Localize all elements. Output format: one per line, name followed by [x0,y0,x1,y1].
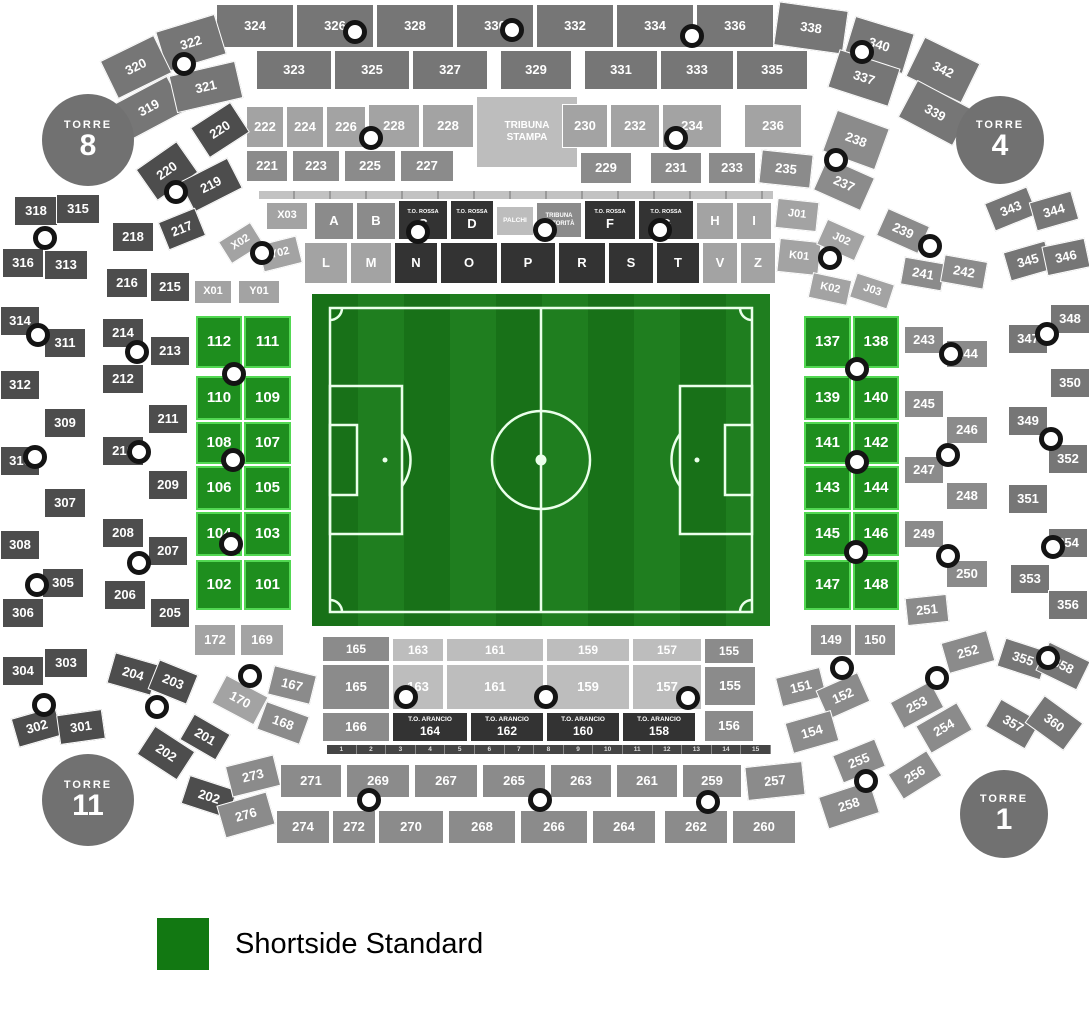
section-336: 336 [696,4,774,48]
section-262: 262 [664,810,728,844]
section-label: 217 [169,219,194,240]
gate-marker [221,448,245,472]
gate-marker [850,40,874,64]
section-249: 249 [904,520,944,548]
section-sub-label: T.O. ARANCIO [408,717,452,724]
section-325: 325 [334,50,410,90]
section-label: 110 [207,390,231,406]
section-label: 346 [1054,248,1078,266]
section-label: T [674,256,682,270]
section-172: 172 [194,624,236,656]
section-label: 312 [9,378,31,392]
section-label: STAMPA [507,133,548,144]
section-label: 237 [831,173,856,194]
gate-marker [172,52,196,76]
section-label: 221 [256,159,278,173]
section-h: H [696,202,734,240]
section-label: 139 [815,390,840,406]
section-335: 335 [736,50,808,90]
section-318: 318 [14,196,58,226]
section-label: P [524,256,533,270]
section-label: 103 [255,526,280,542]
gate-marker [25,573,49,597]
section-label: 168 [270,713,295,733]
seat-strip-cell-10: 10 [593,745,623,754]
section-165: 165 [322,664,390,710]
section-label: R [577,256,586,270]
gate-marker [528,788,552,812]
section-m: M [350,242,392,284]
section-220: 220 [190,102,250,158]
section-256: 256 [888,750,943,800]
gate-marker [818,246,842,270]
section-label: 229 [595,161,617,175]
section-label: 232 [624,119,646,133]
section-label: 142 [863,435,888,451]
section-272: 272 [332,810,376,844]
section-label: 257 [763,773,786,789]
section-label: 233 [721,161,743,175]
section-label: 272 [343,820,365,834]
section-label: 263 [570,774,592,788]
section-154: 154 [785,710,840,754]
section-label: 239 [890,220,915,241]
section-i: I [736,202,772,240]
section-274: 274 [276,810,330,844]
section-label: 145 [815,526,840,542]
section-label: 141 [815,435,840,451]
section-105[interactable]: 105 [244,466,291,510]
legend: Shortside Standard [157,918,483,970]
section-215: 215 [150,272,190,302]
section-label: 246 [956,423,978,437]
section-356: 356 [1048,590,1088,620]
section-137[interactable]: 137 [804,316,851,368]
section-label: 147 [815,577,840,593]
tower-11: TORRE11 [42,754,134,846]
section-label: H [710,214,719,228]
gate-marker [824,148,848,172]
seat-strip-cell-5: 5 [445,745,475,754]
tower-8: TORRE8 [42,94,134,186]
section-label: 170 [227,689,253,711]
section-label: 315 [67,202,89,216]
section-label: 205 [159,606,181,620]
section-label: N [411,256,420,270]
section-label: 251 [915,602,938,618]
section-l: L [304,242,348,284]
section-217: 217 [158,208,206,251]
gate-marker [854,769,878,793]
section-245: 245 [904,390,944,418]
section-label: I [752,214,756,228]
section-167: 167 [267,665,317,705]
section-label: Z [754,256,762,270]
section-label: K02 [819,281,841,296]
seat-strip-cell-15: 15 [741,745,771,754]
section-351: 351 [1008,484,1048,514]
section-235: 235 [758,149,813,188]
gate-marker [238,664,262,688]
section-p: P [500,242,556,284]
section-label: 227 [416,159,438,173]
section-168: 168 [256,701,309,745]
section-label: 208 [112,526,134,540]
section-260: 260 [732,810,796,844]
seat-strip-cell-6: 6 [475,745,505,754]
section-label: 320 [123,56,148,78]
section-label: 331 [610,63,632,77]
section-label: L [322,256,330,270]
section-label: 355 [1011,649,1036,669]
section-164: T.O. ARANCIO164 [392,712,468,742]
section-label: 351 [1017,492,1039,506]
section-a: A [314,202,354,240]
section-label: 262 [685,820,707,834]
tower-number: 4 [992,131,1009,161]
section-label: 238 [843,130,868,150]
section-label: 334 [644,19,666,33]
section-143[interactable]: 143 [804,466,851,510]
section-label: 270 [400,820,422,834]
section-label: 349 [1017,414,1039,428]
section-label: 313 [55,258,77,272]
section-161: 161 [446,638,544,662]
section-label: 303 [55,656,77,670]
section-label: 264 [613,820,635,834]
section-label: 311 [55,336,76,350]
section-label: 140 [863,390,888,406]
tower-number: 8 [80,131,97,161]
section-label: 252 [956,642,981,661]
section-label: 258 [837,795,862,815]
gate-marker [357,788,381,812]
section-label: 339 [922,102,948,124]
section-101[interactable]: 101 [244,560,291,610]
gate-marker [696,790,720,814]
section-label: 348 [1059,312,1081,326]
section-label: 228 [383,119,405,133]
section-label: 152 [830,685,855,706]
section-sub-label: T.O. ROSSA [407,210,438,216]
section-141[interactable]: 141 [804,422,851,464]
seat-strip-cell-3: 3 [386,745,416,754]
gate-marker [845,357,869,381]
section-241: 241 [900,257,946,292]
section-221: 221 [246,150,288,182]
gate-marker [845,450,869,474]
section-205: 205 [150,598,190,628]
section-d: T.O. ROSSAD [450,200,494,240]
section-103[interactable]: 103 [244,512,291,556]
section-350: 350 [1050,368,1089,398]
section-label: 164 [420,725,440,738]
gate-marker [250,241,274,265]
section-label: 344 [1042,201,1067,220]
seat-number-strip: 123456789101112131415 [326,744,772,755]
section-label: 214 [112,326,134,340]
gate-marker [648,218,672,242]
gate-marker [164,180,188,204]
gate-marker [394,685,418,709]
section-label: 265 [503,774,525,788]
section-140[interactable]: 140 [853,376,899,420]
section-label: B [371,214,380,228]
section-312: 312 [0,370,40,400]
section-label: 357 [1000,713,1026,736]
section-label: 321 [194,78,218,96]
section-label: 224 [294,120,316,134]
section-label: 144 [863,480,888,496]
section-z: Z [740,242,776,284]
section-155: 155 [704,638,754,664]
section-111[interactable]: 111 [244,316,291,368]
section-label: 241 [911,265,935,282]
section-label: 266 [543,820,565,834]
section-149: 149 [810,624,852,656]
section-266: 266 [520,810,588,844]
section-213: 213 [150,336,190,366]
section-308: 308 [0,530,40,560]
section-252: 252 [941,630,996,674]
seat-strip-cell-13: 13 [682,745,712,754]
gate-marker [33,226,57,250]
section-label: 271 [300,774,322,788]
stadium-seat-map: 123456789101112131415 Shortside Standard… [0,0,1089,1032]
section-label: 162 [497,725,517,738]
section-label: 220 [207,118,233,141]
section-label: 267 [435,774,457,788]
section-label: 155 [719,679,741,693]
section-243: 243 [904,326,944,354]
section-label: 356 [1057,598,1079,612]
gate-marker [664,126,688,150]
section-label: O [464,256,474,270]
section-label: V [716,256,725,270]
gate-marker [145,695,169,719]
section-107[interactable]: 107 [244,422,291,464]
section-label: 316 [12,256,34,270]
section-label: 165 [346,643,366,656]
section-344: 344 [1029,191,1080,232]
section-148[interactable]: 148 [853,560,899,610]
section-label: 211 [158,412,179,426]
tower-number: 11 [72,791,104,821]
section-label: 249 [913,527,935,541]
section-label: 236 [762,119,784,133]
section-273: 273 [225,754,281,797]
section-label: 167 [280,676,304,694]
section-label: 314 [9,314,31,328]
section-label: S [627,256,636,270]
section-label: 254 [931,717,957,740]
section-sub-label: T.O. ARANCIO [561,717,605,724]
section-palchi: PALCHI [496,206,534,236]
section-label: 112 [207,334,231,350]
section-b: B [356,202,396,240]
section-label: 322 [179,33,204,52]
section-147[interactable]: 147 [804,560,851,610]
row-indicator-strip-top [258,190,774,200]
gate-marker [219,532,243,556]
section-label: 276 [234,805,259,824]
section-label: 225 [359,159,381,173]
section-label: 338 [799,20,822,37]
section-257: 257 [744,761,805,801]
section-338: 338 [773,1,848,54]
section-label: 350 [1059,376,1081,390]
section-label: 235 [774,161,797,177]
section-316: 316 [2,248,44,278]
section-268: 268 [448,810,516,844]
section-106[interactable]: 106 [196,466,242,510]
section-209: 209 [148,470,188,500]
section-label: 305 [52,576,74,590]
section-label: D [467,217,476,231]
section-label: 247 [913,463,935,477]
gate-marker [1035,322,1059,346]
section-k01: K01 [776,238,821,276]
section-label: 260 [753,820,775,834]
section-label: F [606,217,614,231]
section-label: J03 [861,283,882,300]
section-109[interactable]: 109 [244,376,291,420]
gate-marker [844,540,868,564]
section-label: 166 [345,720,367,734]
section-sub-label: T.O. ROSSA [456,210,487,216]
section-v: V [702,242,738,284]
section-327: 327 [412,50,488,90]
section-label: A [329,214,338,228]
section-label: 218 [122,230,144,244]
section-label: 250 [956,567,978,581]
section-label: 159 [577,680,599,694]
section-331: 331 [584,50,658,90]
section-label: 160 [573,725,593,738]
gate-marker [830,656,854,680]
section-label: 327 [439,63,461,77]
section-k02: K02 [808,272,853,306]
seat-strip-cell-8: 8 [534,745,564,754]
gate-marker [1039,427,1063,451]
section-157: 157 [632,638,702,662]
section-label: 336 [724,19,746,33]
section-323: 323 [256,50,332,90]
section-159: 159 [546,638,630,662]
section-329: 329 [500,50,572,90]
section-label: PALCHI [503,218,527,225]
section-229: 229 [580,152,632,184]
tower-number: 1 [996,805,1013,835]
section-158: T.O. ARANCIO158 [622,712,696,742]
section-label: 157 [657,644,677,657]
section-label: 360 [1041,711,1067,735]
section-label: J01 [787,208,806,221]
section-label: 337 [852,68,877,88]
section-label: 202 [197,787,222,807]
section-163: 163 [392,638,444,662]
section-246: 246 [946,416,988,444]
section-label: 106 [206,480,231,496]
section-label: 138 [863,334,888,350]
section-label: 216 [116,276,138,290]
section-n: N [394,242,438,284]
section-label: X03 [277,210,297,222]
section-label: 242 [952,263,976,280]
gate-marker [500,18,524,42]
section-label: 329 [525,63,547,77]
section-139[interactable]: 139 [804,376,851,420]
gate-marker [406,220,430,244]
section-159: 159 [546,664,630,710]
section-t: T [656,242,700,284]
seat-strip-cell-11: 11 [623,745,653,754]
section-label: 111 [256,334,279,350]
section-label: 318 [25,204,47,218]
section-label: 352 [1057,452,1079,466]
section-label: 304 [12,664,34,678]
gate-marker [918,234,942,258]
section-label: 148 [863,577,888,593]
section-346: 346 [1041,238,1089,276]
section-271: 271 [280,764,342,798]
section-sub-label: T.O. ROSSA [594,210,625,216]
section-f: T.O. ROSSAF [584,200,636,240]
section-242: 242 [940,254,988,289]
section-label: 333 [686,63,708,77]
section-label: 169 [251,633,273,647]
section-label: 248 [956,489,978,503]
section-225: 225 [344,150,396,182]
section-112[interactable]: 112 [196,316,242,368]
section-label: 151 [789,678,813,696]
section-sub-label: T.O. ARANCIO [485,717,529,724]
section-label: 207 [157,544,179,558]
section-label: 165 [345,680,367,694]
seat-strip-cell-12: 12 [653,745,683,754]
section-102[interactable]: 102 [196,560,242,610]
section-o: O [440,242,498,284]
section-label: 301 [69,719,92,736]
section-360: 360 [1025,695,1084,751]
section-263: 263 [550,764,612,798]
section-230: 230 [562,104,608,148]
section-228: 228 [422,104,474,148]
section-261: 261 [616,764,678,798]
section-label: 274 [292,820,314,834]
section-sub-label: T.O. ARANCIO [637,717,681,724]
section-248: 248 [946,482,988,510]
section-309: 309 [44,408,86,438]
section-label: 324 [244,19,266,33]
section-162: T.O. ARANCIO162 [470,712,544,742]
section-267: 267 [414,764,478,798]
tower-4: TORRE4 [956,96,1044,184]
section-315: 315 [56,194,100,224]
section-label: 307 [54,496,76,510]
section-150: 150 [854,624,896,656]
section-232: 232 [610,104,660,148]
seat-strip-cell-7: 7 [505,745,535,754]
section-306: 306 [2,598,44,628]
gate-marker [23,445,47,469]
section-233: 233 [708,152,756,184]
section-label: 302 [25,717,50,736]
section-label: X02 [230,233,253,253]
section-label: 154 [800,722,825,741]
gate-marker [125,340,149,364]
section-label: 230 [574,119,596,133]
